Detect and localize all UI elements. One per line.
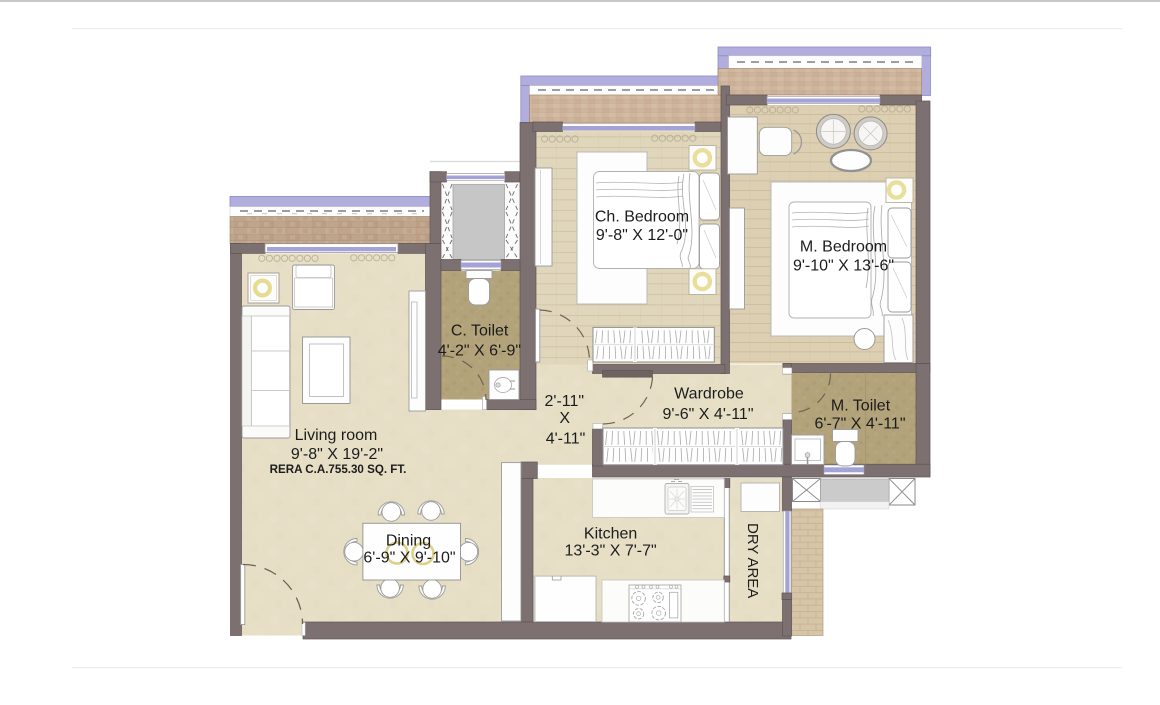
- svg-text:9'-10" X 13'-6": 9'-10" X 13'-6": [793, 258, 894, 275]
- svg-text:2'-11": 2'-11": [545, 393, 585, 410]
- svg-text:DRY AREA: DRY AREA: [744, 523, 761, 598]
- svg-text:Kitchen: Kitchen: [584, 526, 637, 543]
- svg-text:Living room: Living room: [295, 427, 378, 444]
- svg-text:RERA C.A.755.30 SQ. FT.: RERA C.A.755.30 SQ. FT.: [270, 463, 407, 476]
- svg-text:Dining: Dining: [386, 533, 431, 550]
- svg-text:9'-6" X 4'-11": 9'-6" X 4'-11": [663, 406, 754, 423]
- svg-text:6'-9" X 9'-10": 6'-9" X 9'-10": [363, 550, 455, 567]
- svg-text:C. Toilet: C. Toilet: [451, 323, 509, 340]
- svg-text:M. Bedroom: M. Bedroom: [800, 239, 887, 256]
- svg-text:4'-11": 4'-11": [546, 431, 586, 448]
- svg-text:9'-8" X 19'-2": 9'-8" X 19'-2": [291, 446, 383, 463]
- svg-text:Ch. Bedroom: Ch. Bedroom: [595, 209, 689, 226]
- svg-text:4'-2" X 6'-9": 4'-2" X 6'-9": [438, 343, 521, 360]
- svg-text:9'-8" X 12'-0": 9'-8" X 12'-0": [596, 227, 688, 244]
- svg-text:M. Toilet: M. Toilet: [831, 398, 891, 415]
- svg-text:Wardrobe: Wardrobe: [674, 386, 744, 403]
- svg-text:6'-7" X 4'-11": 6'-7" X 4'-11": [815, 416, 906, 433]
- svg-text:13'-3" X 7'-7": 13'-3" X 7'-7": [565, 543, 657, 560]
- svg-text:X: X: [559, 410, 570, 427]
